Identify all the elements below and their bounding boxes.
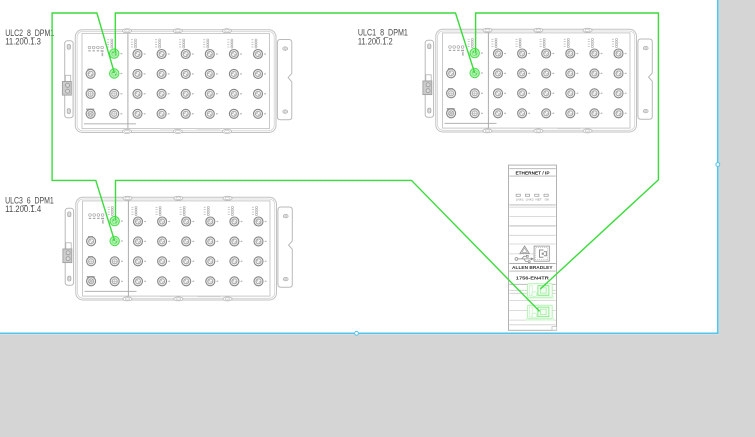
svg-text:LNK1 LNK2 NET OK: LNK1 LNK2 NET OK: [516, 198, 550, 202]
svg-text:11.200.1.3: 11.200.1.3: [5, 37, 41, 47]
svg-text:11.200.1.2: 11.200.1.2: [358, 36, 393, 46]
svg-text:1756-EN4TR: 1756-EN4TR: [516, 276, 550, 281]
svg-text:ALLEN BRADLEY: ALLEN BRADLEY: [512, 265, 553, 270]
svg-text:11.200.1.4: 11.200.1.4: [5, 204, 41, 214]
svg-text:ETHERNET / IP: ETHERNET / IP: [516, 170, 551, 176]
